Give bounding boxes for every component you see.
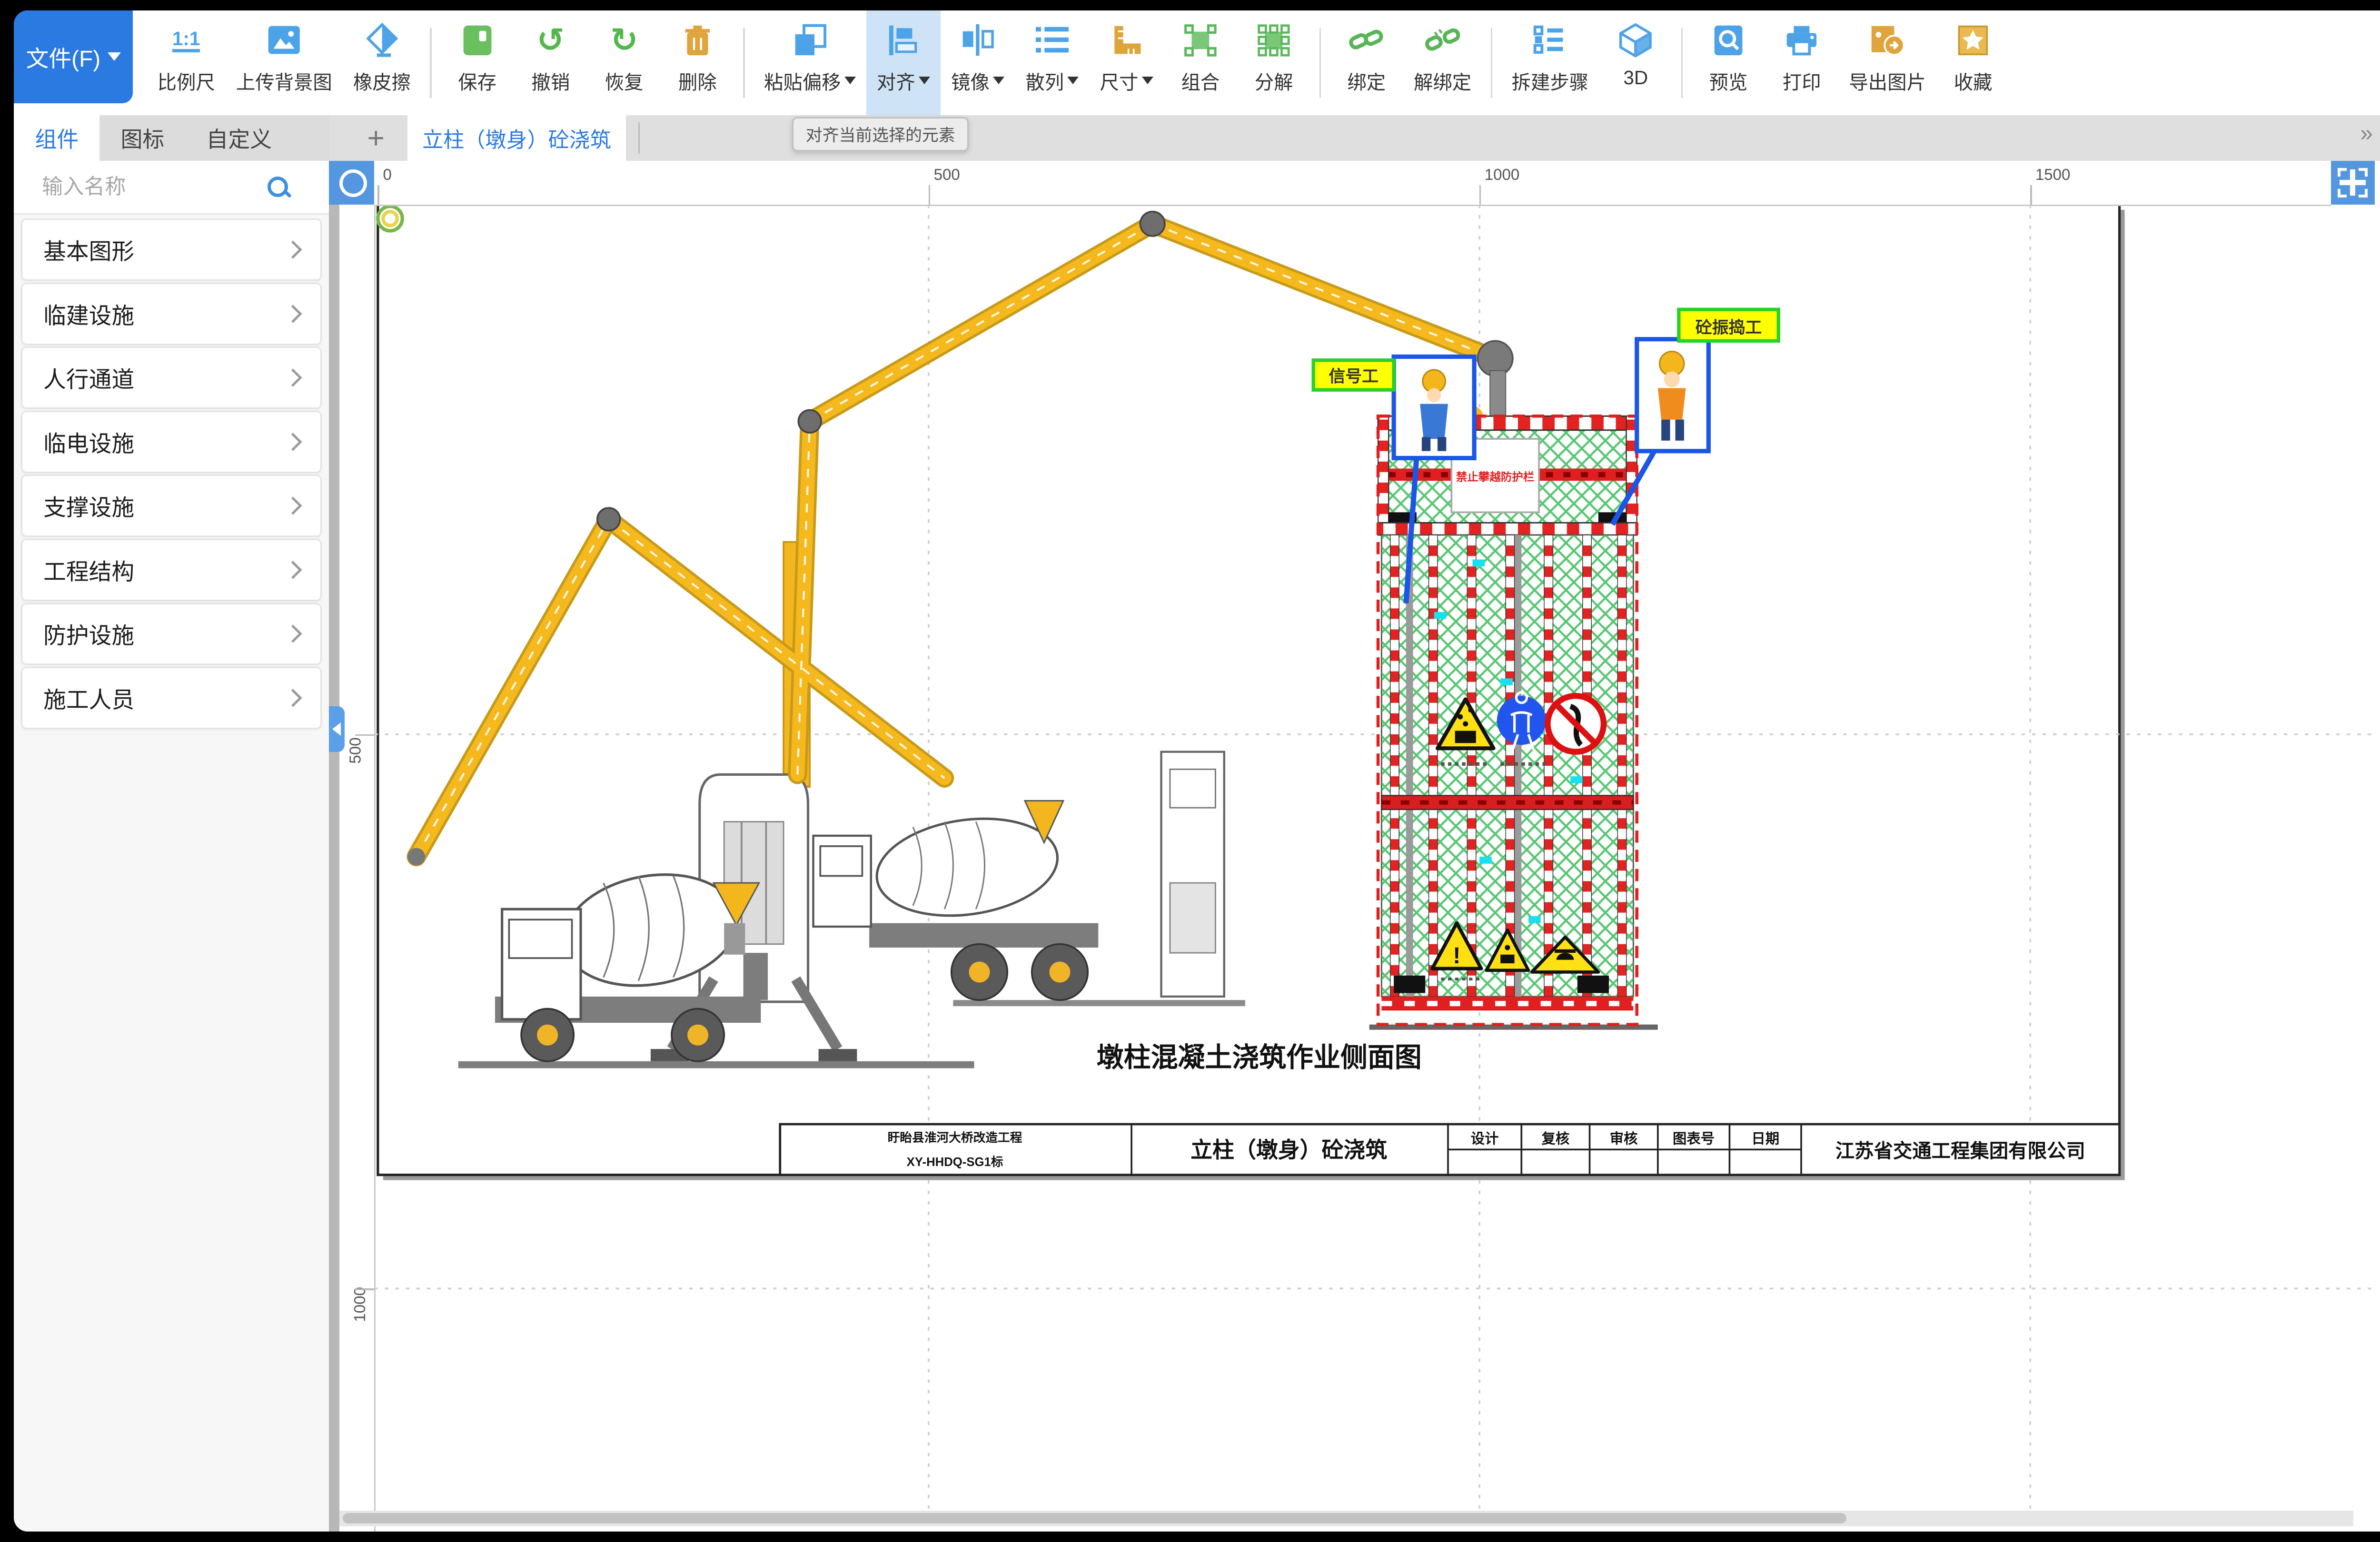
toolbar-button-label: 对齐	[877, 67, 930, 95]
toolbar-button-label: 保存	[458, 67, 496, 95]
chevron-down-icon	[919, 77, 930, 84]
toolbar-button-ungroup[interactable]: 分解	[1237, 10, 1310, 115]
tab-divider	[638, 122, 640, 154]
tab-overflow-icon[interactable]: »	[2360, 120, 2373, 147]
vertical-ruler: 5001000	[339, 205, 376, 1532]
tb-company: 江苏省交通工程集团有限公司	[1835, 1140, 2085, 1162]
vruler-tick	[355, 1288, 374, 1290]
category-label: 防护设施	[43, 617, 134, 650]
paste-offset-icon	[793, 21, 827, 59]
toolbar-button-preview[interactable]: 预览	[1692, 10, 1765, 115]
toolbar-button-align[interactable]: 对齐	[866, 10, 941, 115]
signal-worker-label: 信号工	[1329, 367, 1378, 386]
category-label: 施工人员	[43, 682, 134, 714]
export-image-icon	[1870, 21, 1904, 59]
trash-icon	[684, 21, 712, 59]
toolbar-button-undo[interactable]: ↺撤销	[514, 10, 587, 115]
tb-project-line1: 盱眙县淮河大桥改造工程	[887, 1130, 1022, 1145]
toolbar-button-print[interactable]: 打印	[1765, 10, 1838, 115]
drawing-scene: 禁止攀越防护栏	[329, 161, 2375, 1532]
toolbar-button-label: 拆建步骤	[1512, 67, 1589, 95]
triangle-left-icon	[332, 722, 341, 736]
svg-text:!: !	[1453, 943, 1460, 969]
chevron-right-icon	[284, 689, 302, 707]
chevron-down-icon	[108, 52, 121, 61]
eraser-icon	[365, 21, 399, 59]
chevron-down-icon	[1067, 77, 1079, 84]
vruler-tick	[355, 734, 374, 736]
vruler-label: 1000	[351, 1287, 369, 1322]
sidebar-collapse-handle[interactable]	[329, 706, 345, 752]
toolbar-button-size[interactable]: 尺寸	[1090, 10, 1164, 115]
canvas-area[interactable]: 禁止攀越防护栏	[329, 161, 2375, 1532]
undo-icon: ↺	[537, 21, 565, 59]
document-tab-active[interactable]: 立柱（墩身）砼浇筑	[407, 115, 626, 161]
print-icon	[1785, 21, 1818, 59]
chevron-down-icon	[844, 77, 856, 84]
drawing-title: 墩柱混凝土浇筑作业侧面图	[1096, 1042, 1421, 1073]
steps-icon	[1533, 21, 1567, 59]
title-block: 盱眙县淮河大桥改造工程 XY-HHDQ-SG1标 立柱（墩身）砼浇筑 设计复核审…	[780, 1124, 2119, 1175]
chevron-down-icon	[993, 77, 1004, 84]
screenshot-stage: 文件(F) 1:1比例尺上传背景图橡皮擦保存↺撤销↻恢复删除粘贴偏移对齐镜像散列…	[0, 0, 2380, 1542]
toolbar-button-mirror[interactable]: 镜像	[941, 10, 1015, 115]
toolbar-button-label: 绑定	[1347, 67, 1386, 95]
toolbar-button-eraser[interactable]: 橡皮擦	[343, 10, 421, 115]
banner-text: 禁止攀越防护栏	[1456, 470, 1535, 483]
hruler-tick	[1479, 185, 1481, 204]
category-label: 临建设施	[43, 297, 134, 330]
toolbar-button-label: 3D	[1624, 67, 1648, 89]
category-label: 支撑设施	[43, 489, 134, 522]
toolbar-button-save[interactable]: 保存	[440, 10, 514, 115]
hruler-tick	[2030, 185, 2032, 204]
chevron-right-icon	[284, 433, 302, 451]
toolbar-button-label: 恢复	[605, 67, 644, 95]
category-item[interactable]: 施工人员	[21, 667, 322, 729]
chevron-right-icon	[284, 561, 302, 579]
toolbar-button-label: 打印	[1783, 67, 1821, 95]
preview-icon	[1713, 21, 1744, 59]
sidebar-tab-组件[interactable]: 组件	[14, 115, 99, 161]
left-gutter	[329, 205, 339, 1532]
category-item[interactable]: 基本图形	[21, 218, 322, 281]
unbind-icon	[1425, 21, 1460, 59]
toolbar-separator	[743, 28, 745, 98]
sidebar-tab-图标[interactable]: 图标	[99, 115, 185, 161]
toolbar-button-bind[interactable]: 绑定	[1330, 10, 1403, 115]
horizontal-scrollbar[interactable]	[339, 1511, 2354, 1526]
star-icon	[1956, 21, 1990, 59]
toolbar-separator	[1319, 28, 1321, 98]
toolbar-button-group[interactable]: 组合	[1164, 10, 1237, 115]
fit-view-button[interactable]	[2331, 161, 2375, 205]
save-icon	[462, 21, 493, 59]
sidebar-tab-自定义[interactable]: 自定义	[185, 115, 293, 161]
toolbar-button-label: 尺寸	[1100, 67, 1153, 95]
tb-header-label: 审核	[1609, 1130, 1637, 1147]
toolbar-button-label: 粘贴偏移	[764, 67, 856, 95]
category-item[interactable]: 临电设施	[21, 411, 322, 473]
toolbar-button-redo[interactable]: ↻恢复	[587, 10, 661, 115]
toolbar-button-label: 比例尺	[158, 67, 215, 95]
toolbar-button-label: 收藏	[1954, 67, 1993, 95]
toolbar-button-unbind[interactable]: 解绑定	[1403, 10, 1482, 115]
chevron-right-icon	[284, 369, 302, 387]
toolbar-items: 1:1比例尺上传背景图橡皮擦保存↺撤销↻恢复删除粘贴偏移对齐镜像散列尺寸组合分解…	[147, 10, 2010, 115]
sidebar: 组件图标自定义 基本图形临建设施人行通道临电设施支撑设施工程结构防护设施施工人员	[14, 115, 328, 1532]
toolbar-button-label: 删除	[678, 67, 717, 95]
category-item[interactable]: 临建设施	[21, 283, 322, 345]
search-input[interactable]	[39, 173, 256, 200]
tb-header-label: 图表号	[1673, 1131, 1715, 1147]
toolbar-button-cube[interactable]: 3D	[1599, 10, 1672, 115]
hruler-label: 1500	[2035, 166, 2071, 184]
sidebar-tabs: 组件图标自定义	[14, 115, 328, 161]
ground-line-back	[953, 1000, 1245, 1006]
hruler-label: 0	[383, 166, 391, 184]
app-window: 文件(F) 1:1比例尺上传背景图橡皮擦保存↺撤销↻恢复删除粘贴偏移对齐镜像散列…	[14, 10, 2380, 1532]
category-label: 临电设施	[43, 425, 134, 458]
toolbar-button-trash[interactable]: 删除	[661, 10, 734, 115]
toolbar-separator	[1491, 28, 1493, 98]
toolbar-button-export-image[interactable]: 导出图片	[1838, 10, 1936, 115]
category-label: 基本图形	[43, 233, 134, 266]
chevron-down-icon	[1142, 77, 1153, 84]
prohibition-sign	[1547, 696, 1604, 752]
toolbar-button-label: 分解	[1255, 67, 1293, 95]
category-label: 工程结构	[43, 554, 134, 586]
toolbar-button-star[interactable]: 收藏	[1936, 10, 2010, 115]
search-bar	[14, 161, 328, 215]
tb-header-label: 设计	[1470, 1131, 1498, 1147]
add-tab-button[interactable]: +	[357, 119, 395, 158]
category-item[interactable]: 人行通道	[21, 346, 322, 409]
category-item[interactable]: 支撑设施	[21, 474, 322, 537]
document-tabbar: + 立柱（墩身）砼浇筑 »	[329, 115, 2380, 161]
toolbar-separator	[430, 28, 432, 98]
file-menu-button[interactable]: 文件(F)	[14, 10, 133, 103]
ground-line-front	[458, 1061, 974, 1068]
chevron-right-icon	[284, 305, 302, 323]
sheet-frame	[377, 205, 2119, 1175]
component-category-list: 基本图形临建设施人行通道临电设施支撑设施工程结构防护设施施工人员	[14, 217, 328, 731]
toolbar-button-label: 解绑定	[1414, 67, 1471, 95]
file-menu-label: 文件(F)	[26, 40, 100, 73]
align-tooltip: 对齐当前选择的元素	[792, 117, 969, 151]
toolbar: 文件(F) 1:1比例尺上传背景图橡皮擦保存↺撤销↻恢复删除粘贴偏移对齐镜像散列…	[14, 10, 2380, 117]
pier-column: 禁止攀越防护栏	[1378, 405, 1637, 1024]
toolbar-button-steps[interactable]: 拆建步骤	[1501, 10, 1599, 115]
size-icon	[1111, 21, 1142, 59]
hruler-tick	[377, 185, 379, 204]
toolbar-button-label: 上传背景图	[236, 67, 332, 95]
group-icon	[1184, 21, 1217, 59]
toolbar-button-label: 镜像	[951, 67, 1004, 95]
toolbar-button-label: 组合	[1181, 67, 1220, 95]
scale11-icon: 1:1	[172, 21, 200, 59]
toolbar-button-scatter[interactable]: 散列	[1015, 10, 1089, 115]
bind-icon	[1349, 21, 1384, 59]
cube-icon	[1619, 21, 1652, 59]
chevron-right-icon	[284, 240, 302, 258]
tb-header-label: 日期	[1751, 1131, 1779, 1147]
vibrator-worker-label: 砼振捣工	[1695, 318, 1761, 337]
toolbar-button-upload-bg[interactable]: 上传背景图	[226, 10, 343, 115]
align-icon	[888, 21, 919, 59]
toolbar-button-scale11[interactable]: 1:1比例尺	[147, 10, 226, 115]
ungroup-icon	[1257, 21, 1290, 59]
hruler-label: 500	[934, 166, 960, 184]
toolbar-button-paste-offset[interactable]: 粘贴偏移	[754, 10, 866, 115]
mirror-icon	[961, 21, 994, 59]
toolbar-button-label: 导出图片	[1849, 67, 1926, 95]
upload-bg-icon	[267, 21, 301, 59]
search-icon[interactable]	[266, 175, 290, 199]
category-label: 人行通道	[43, 361, 134, 394]
origin-icon	[339, 169, 367, 197]
chevron-right-icon	[284, 497, 302, 515]
toolbar-button-label: 撤销	[531, 67, 570, 95]
redo-icon: ↻	[610, 21, 638, 59]
hruler-tick	[929, 185, 931, 204]
toolbar-separator	[1681, 28, 1683, 98]
chevron-right-icon	[284, 625, 302, 643]
tb-project-line2: XY-HHDQ-SG1标	[906, 1155, 1003, 1169]
category-item[interactable]: 防护设施	[21, 603, 322, 665]
toolbar-button-label: 预览	[1709, 67, 1748, 95]
truck-far-right	[1161, 752, 1224, 997]
toolbar-button-label: 橡皮擦	[353, 67, 411, 95]
tb-header-label: 复核	[1541, 1131, 1569, 1147]
origin-button[interactable]	[329, 161, 375, 205]
scatter-icon	[1036, 21, 1069, 59]
vruler-label: 500	[347, 737, 365, 763]
category-item[interactable]: 工程结构	[21, 539, 322, 601]
hruler-label: 1000	[1485, 166, 1520, 184]
horizontal-scrollbar-thumb[interactable]	[343, 1513, 1846, 1523]
tb-drawing-name: 立柱（墩身）砼浇筑	[1190, 1137, 1387, 1162]
toolbar-button-label: 散列	[1025, 67, 1079, 95]
horizontal-ruler: 050010001500	[374, 161, 2331, 206]
